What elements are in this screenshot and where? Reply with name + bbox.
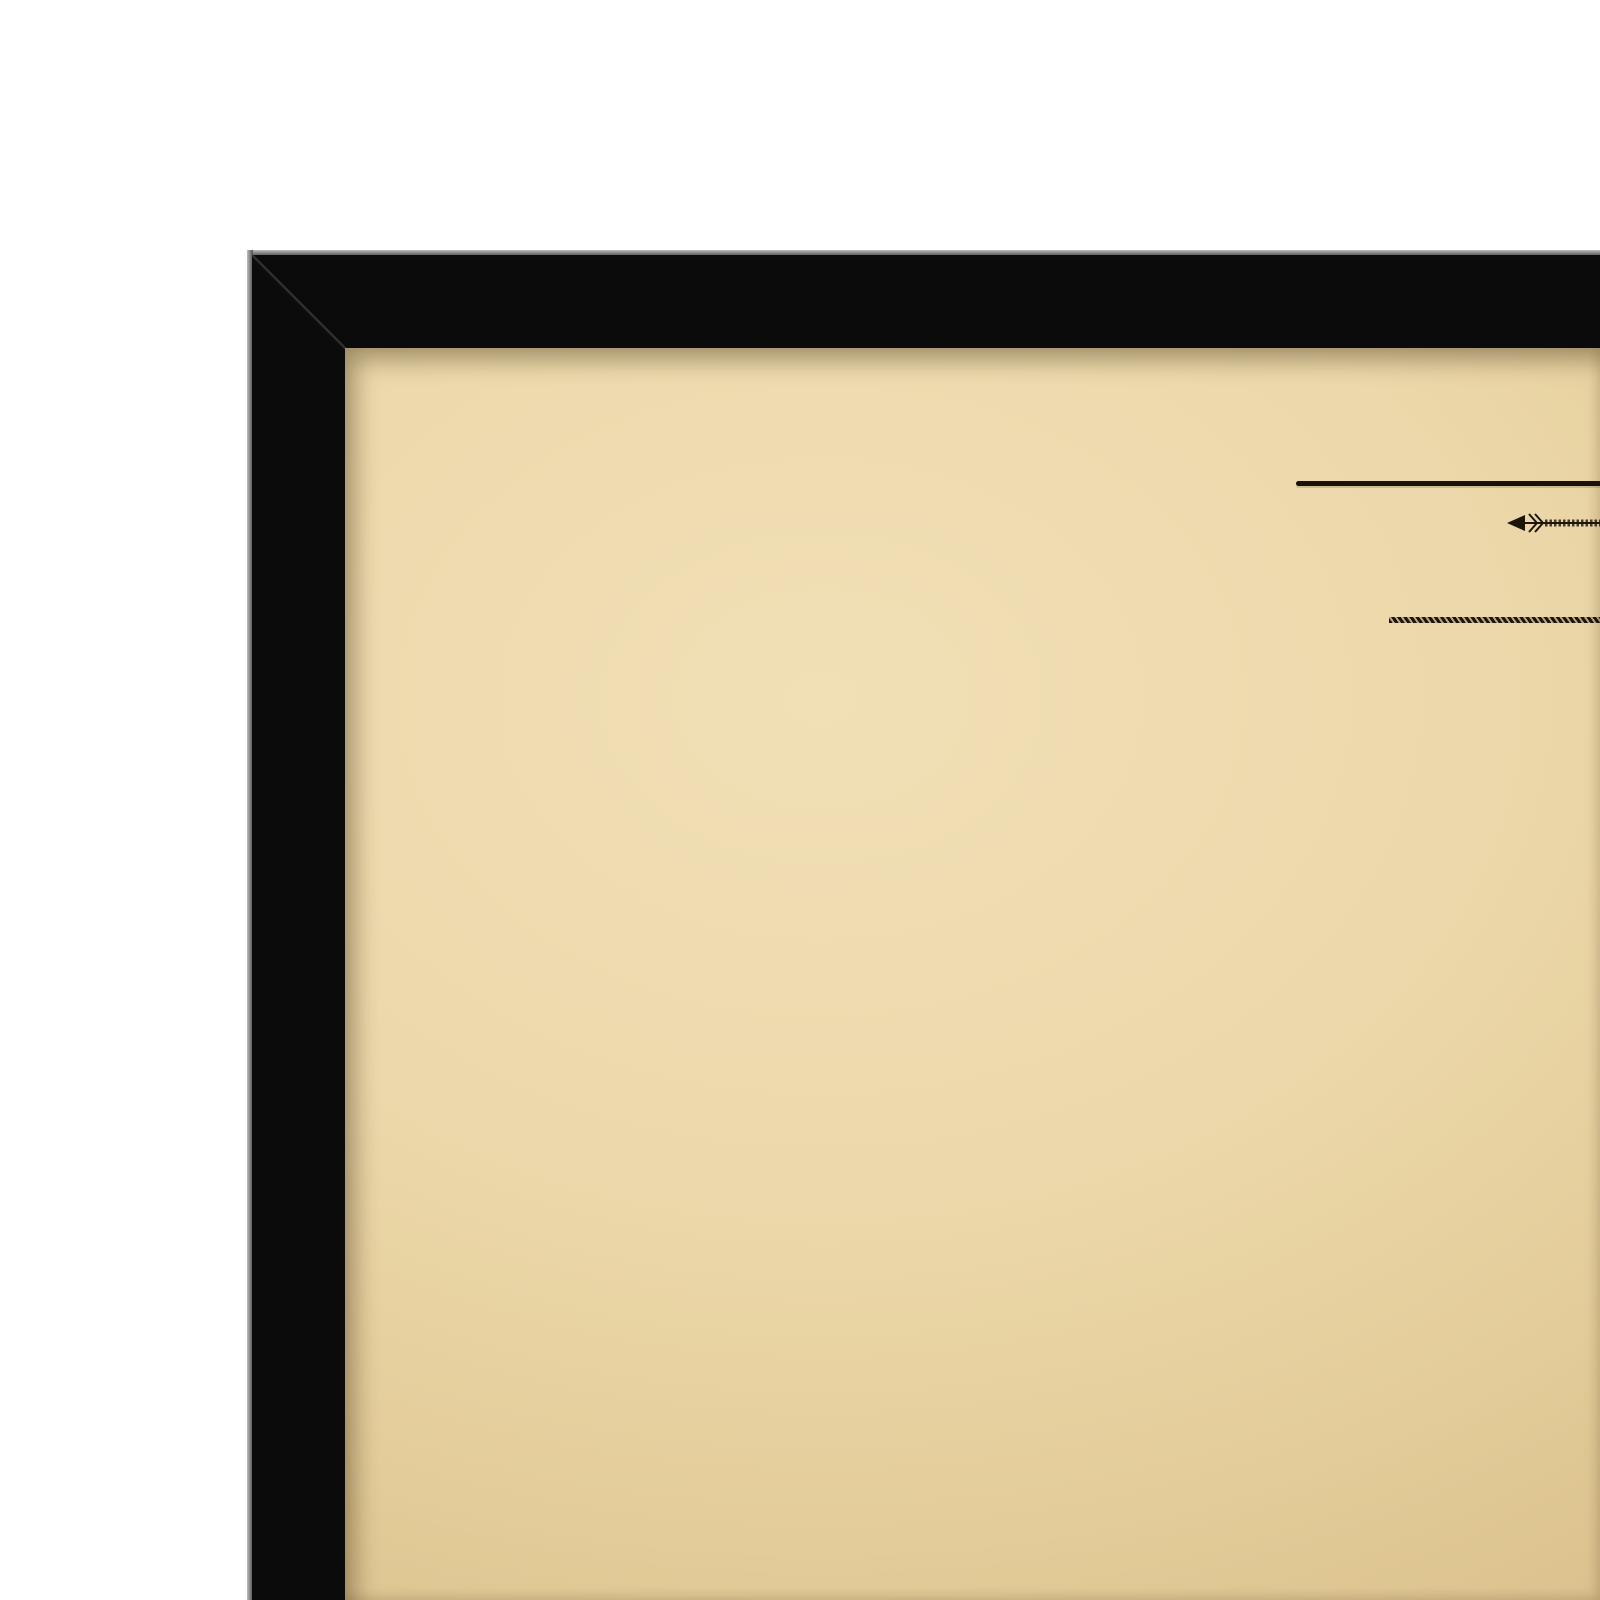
map-drawing: [345, 348, 1600, 1600]
product-photo: [0, 0, 1600, 1600]
frame-miter-joint: [252, 255, 352, 355]
map-paper: [345, 348, 1600, 1600]
